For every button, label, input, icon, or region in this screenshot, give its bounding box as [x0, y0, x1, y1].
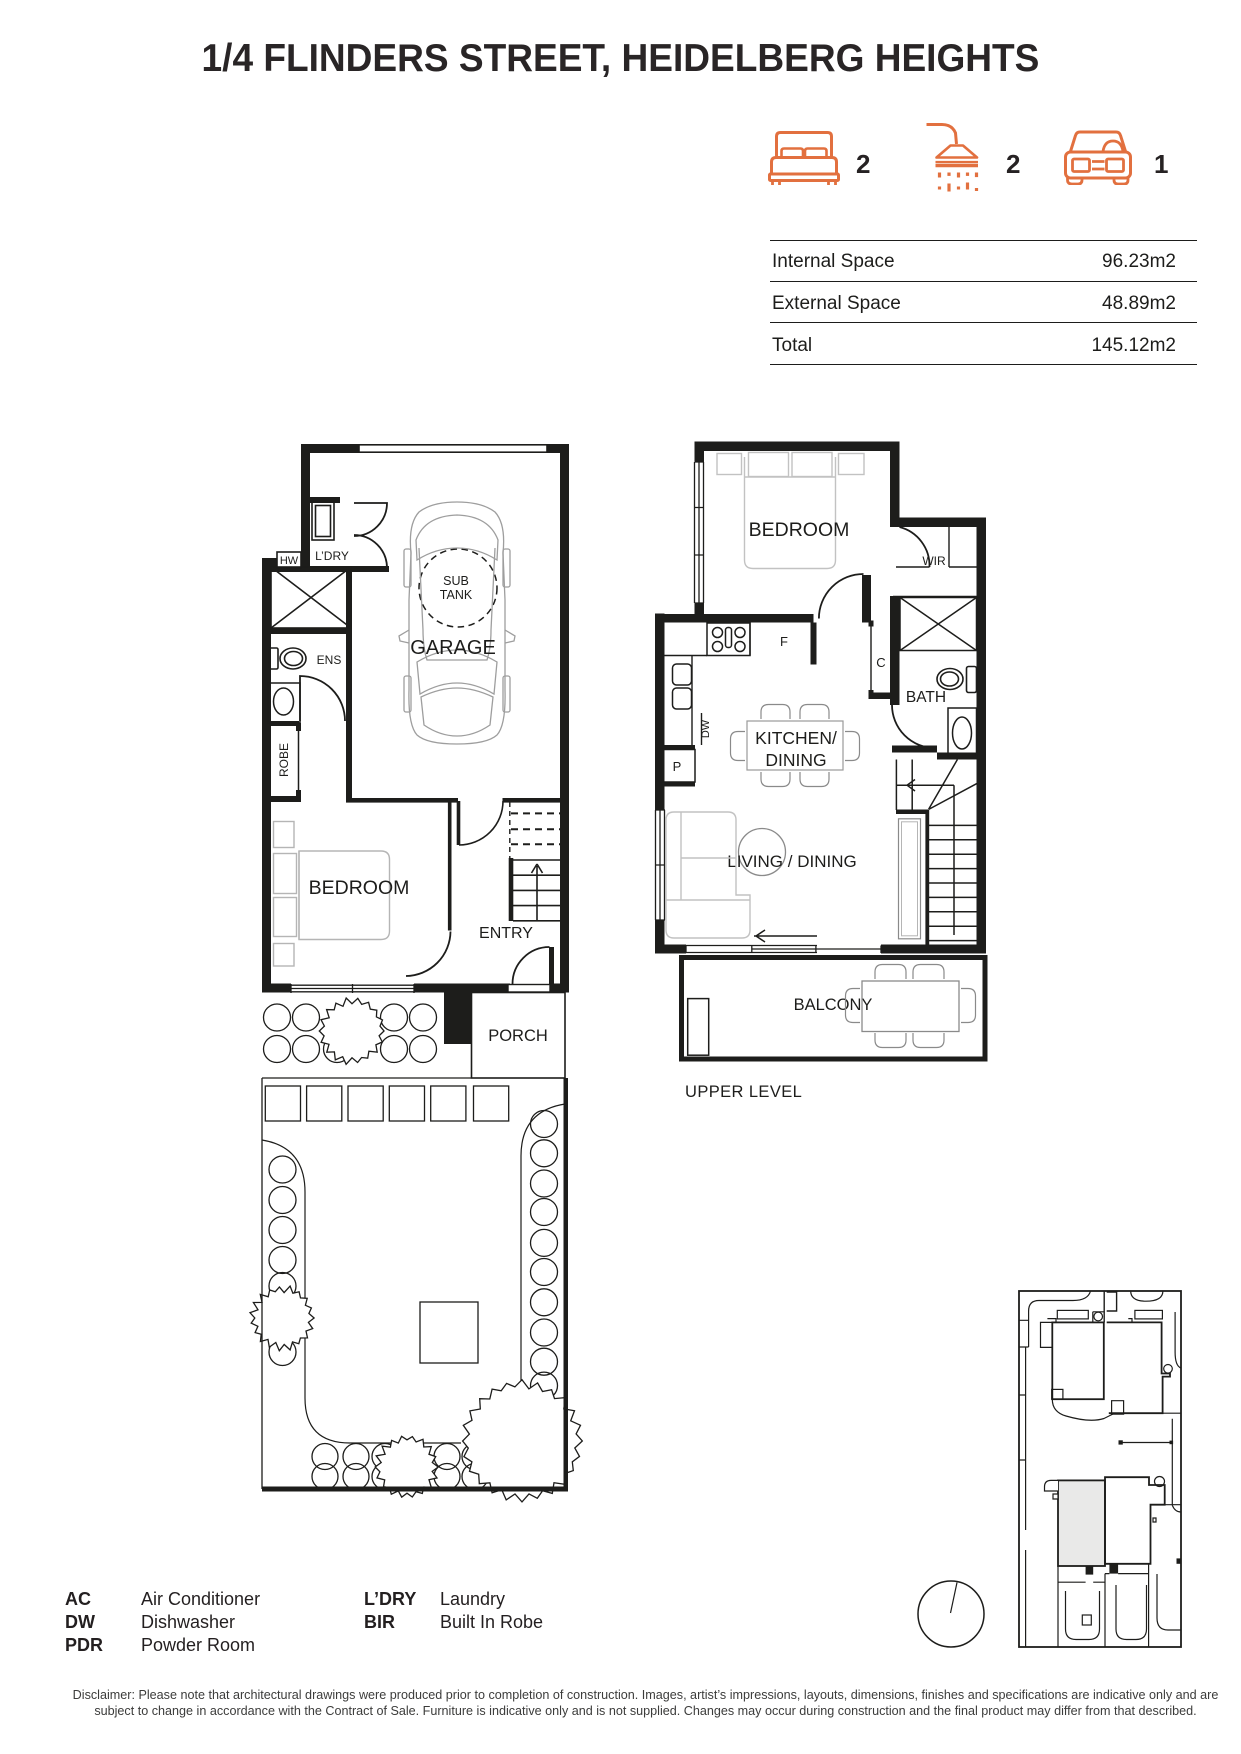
svg-text:ENTRY: ENTRY	[479, 925, 533, 942]
svg-text:SUB: SUB	[443, 574, 469, 588]
svg-text:C: C	[876, 655, 885, 670]
svg-text:TANK: TANK	[440, 588, 473, 602]
svg-text:DINING: DINING	[765, 750, 826, 770]
svg-text:BEDROOM: BEDROOM	[749, 519, 850, 541]
svg-text:GARAGE: GARAGE	[410, 637, 496, 659]
svg-text:DW: DW	[700, 719, 712, 738]
svg-text:UPPER LEVEL: UPPER LEVEL	[685, 1083, 802, 1101]
svg-text:KITCHEN/: KITCHEN/	[755, 728, 837, 748]
svg-text:F: F	[780, 634, 788, 649]
svg-text:BALCONY: BALCONY	[794, 996, 873, 1014]
svg-text:ROBE: ROBE	[277, 743, 291, 777]
svg-text:BEDROOM: BEDROOM	[309, 877, 410, 899]
svg-text:L’DRY: L’DRY	[315, 549, 349, 563]
svg-text:HW: HW	[280, 555, 299, 567]
svg-text:ENS: ENS	[317, 653, 342, 667]
svg-text:BATH: BATH	[906, 689, 946, 706]
svg-text:WIR: WIR	[922, 554, 946, 568]
svg-text:LIVING / DINING: LIVING / DINING	[727, 852, 856, 871]
svg-text:P: P	[673, 759, 682, 774]
svg-text:PORCH: PORCH	[488, 1027, 548, 1045]
